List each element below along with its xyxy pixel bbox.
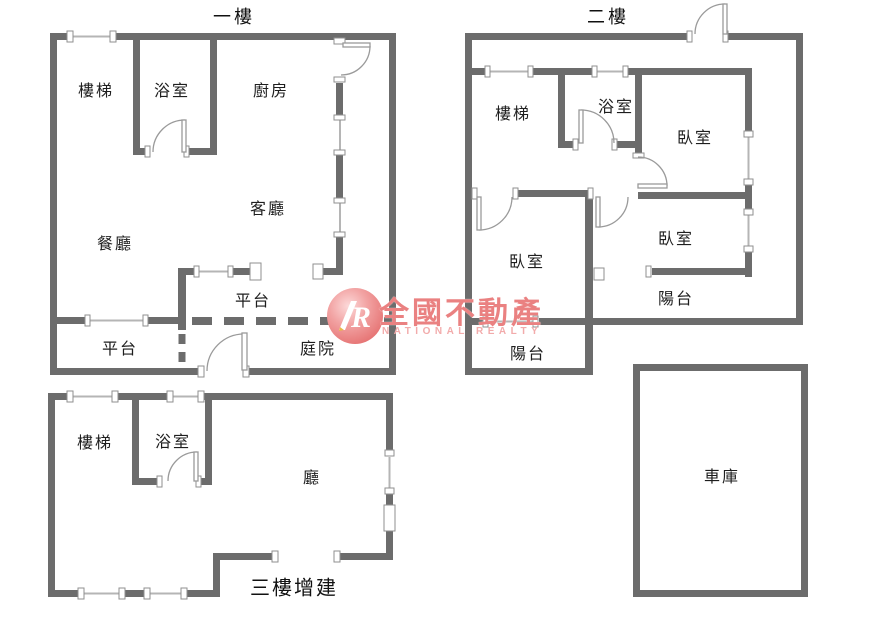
floor1-title: 一樓 [213, 3, 255, 29]
floor3-plan [48, 391, 395, 599]
floor3-label-stairs: 樓梯 [77, 429, 113, 453]
floor1-label-bathroom: 浴室 [154, 77, 190, 101]
national-realty-logo-icon: R [325, 286, 385, 346]
floor1-courtyard-door-arc [207, 334, 244, 371]
floor3-window-glass [73, 397, 390, 594]
floor2-label-bedroom-right: 臥室 [658, 225, 694, 249]
floor1-label-kitchen: 廚房 [253, 77, 289, 101]
floor2-label-bathroom: 浴室 [598, 93, 634, 117]
floor2-jambs [472, 31, 753, 327]
floor3-jambs [67, 391, 395, 599]
floor1-label-dining-room: 餐廳 [97, 230, 133, 254]
garage-label: 車庫 [704, 463, 740, 487]
floor2-bedroom-right-door-arc [598, 197, 628, 227]
floor3-doors [168, 452, 198, 481]
floor2-label-bedroom-top: 臥室 [677, 124, 713, 148]
logo-monogram: R [350, 301, 371, 334]
floor3-label-hall: 廳 [303, 464, 321, 488]
floor3-walls [48, 393, 393, 597]
floor1-label-platform-upper: 平台 [235, 287, 271, 311]
floor2-label-balcony-right: 陽台 [658, 285, 694, 309]
floor1-label-platform-lower: 平台 [102, 335, 138, 359]
floorplan-canvas: 一樓 樓梯 浴室 廚房 客廳 餐廳 平台 平台 庭院 二樓 樓梯 浴室 臥室 臥… [0, 0, 877, 632]
floor2-bedroom-left-door-arc [479, 197, 512, 230]
national-realty-watermark: R 全國不動產 NATIONAL REALTY [325, 286, 550, 344]
floor3-label-bathroom: 浴室 [155, 428, 191, 452]
floor2-label-stairs: 樓梯 [495, 100, 531, 124]
floor1-label-stairs: 樓梯 [78, 77, 114, 101]
floor2-bedroom-top-door-arc [638, 157, 667, 186]
floor2-title: 二樓 [587, 3, 629, 29]
floor1-label-living-room: 客廳 [250, 195, 286, 219]
floor1-kitchen-door-arc [341, 46, 370, 75]
floor2-label-bedroom-left: 臥室 [509, 248, 545, 272]
floor1-bathroom-door-arc [153, 120, 185, 152]
floor3-title: 三樓增建 [250, 572, 338, 601]
floor3-bathroom-door-arc [168, 452, 197, 481]
floor2-entry-door-arc [695, 4, 725, 34]
logo-tagline-text: NATIONAL REALTY [382, 326, 542, 337]
